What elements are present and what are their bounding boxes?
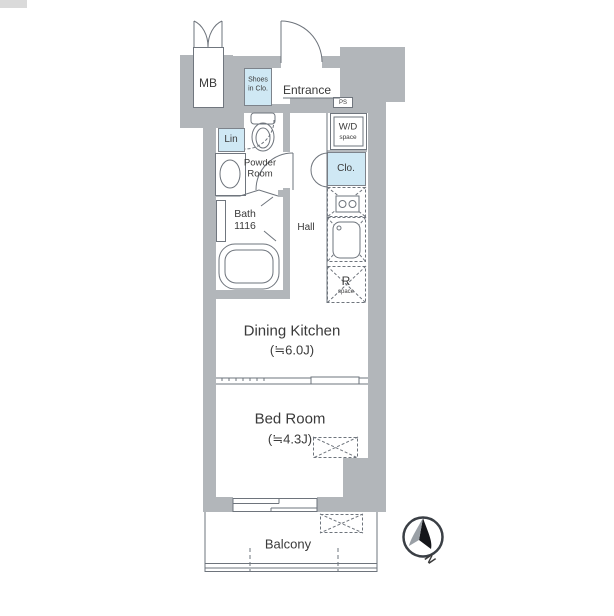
bath-leader-lines <box>261 197 276 241</box>
mb-double-door-icon <box>194 21 222 48</box>
wd-space-label-2: space <box>339 135 356 142</box>
wall-entrance-bottom <box>290 98 368 113</box>
kitchen-sink-icon <box>327 217 366 262</box>
bathtub-icon <box>219 244 279 289</box>
north-compass-icon <box>404 518 443 557</box>
sliding-partition-icon <box>216 377 368 384</box>
dining-kitchen-label: Dining Kitchen <box>244 324 341 339</box>
vanity-sink-box <box>215 153 246 196</box>
shoes-closet-label-1: Shoes <box>248 77 268 84</box>
window-opening <box>233 497 317 512</box>
linen-label: Lin <box>224 135 237 145</box>
bedroom-dashed-box <box>313 437 358 458</box>
dining-kitchen-size: (≒6.0J) <box>270 344 314 357</box>
stove-icon <box>327 187 366 217</box>
bath-label-2: 1116 <box>234 221 256 232</box>
entrance-label: Entrance <box>283 84 331 96</box>
wd-space-label-1: W/D <box>339 122 357 132</box>
powder-room-label-2: Room <box>247 169 272 179</box>
wall-powder-right-lower <box>283 188 290 297</box>
wall-top-right-block <box>340 47 405 102</box>
screenshot-artifact <box>0 0 27 8</box>
wall-top-left-of-door <box>233 56 281 68</box>
ps-label: PS <box>339 100 347 106</box>
bed-room-size: (≒4.3J) <box>268 433 312 446</box>
wall-bottom-right-segment <box>317 497 343 512</box>
bed-room-label: Bed Room <box>255 412 326 427</box>
wall-powder-bath-right <box>278 190 283 197</box>
mb-label: MB <box>199 77 217 89</box>
hall-label: Hall <box>297 223 314 233</box>
floor-plan: MB Shoes in Clo. Entrance PS W/D space L… <box>0 0 614 616</box>
closet-double-door-icon <box>311 153 328 187</box>
wall-bottom-left-segment <box>203 497 233 512</box>
balcony-label: Balcony <box>265 538 311 551</box>
powder-room-label-1: Powder <box>244 158 276 168</box>
toilet-icon <box>245 113 275 151</box>
bath-counter <box>216 200 226 242</box>
r-space-label-1: R <box>342 275 351 287</box>
shoes-closet-label-2: in Clo. <box>248 86 268 93</box>
ac-unit-space-outline <box>320 514 363 533</box>
closet-label: Clo. <box>337 164 355 174</box>
compass-north-label: N <box>423 552 438 567</box>
wall-bath-dk <box>216 290 290 299</box>
r-space-label-2: space <box>338 289 354 295</box>
wall-powder-right-upper <box>283 113 290 152</box>
bath-label-1: Bath <box>234 209 256 220</box>
wall-right-band <box>368 102 386 458</box>
wall-bottom-right-block <box>343 458 386 512</box>
